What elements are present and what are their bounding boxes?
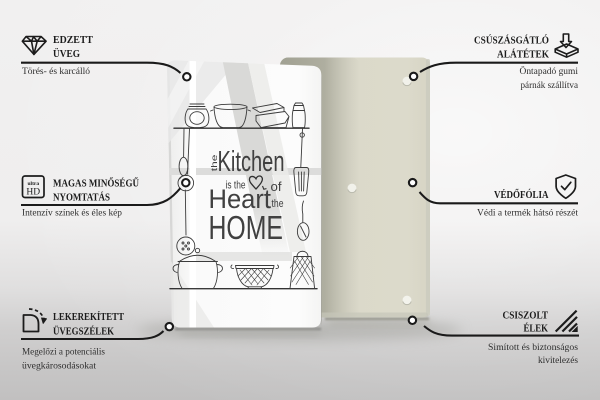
- svg-text:LEKEREKÍTETT: LEKEREKÍTETT: [53, 311, 124, 323]
- svg-text:Védi a termék hátsó részét: Védi a termék hátsó részét: [477, 208, 579, 218]
- svg-text:EDZETT: EDZETT: [53, 35, 93, 46]
- svg-text:CSÚSZÁSGÁTLÓ: CSÚSZÁSGÁTLÓ: [474, 35, 549, 47]
- svg-text:NYOMTATÁS: NYOMTATÁS: [53, 192, 110, 204]
- svg-text:Simított és biztonságos: Simított és biztonságos: [488, 342, 579, 352]
- svg-text:ALÁTÉTEK: ALÁTÉTEK: [497, 49, 549, 61]
- svg-text:Törés- és karcálló: Törés- és karcálló: [22, 66, 91, 76]
- svg-text:HD: HD: [26, 188, 40, 198]
- svg-text:Öntapadó gumi: Öntapadó gumi: [520, 66, 579, 76]
- svg-text:kivitelezés: kivitelezés: [538, 355, 579, 365]
- svg-text:of: of: [271, 179, 282, 194]
- svg-text:Megelőzi a potenciális: Megelőzi a potenciális: [22, 347, 105, 357]
- svg-text:ÜVEGSZÉLEK: ÜVEGSZÉLEK: [53, 325, 114, 338]
- svg-text:ultra: ultra: [27, 181, 39, 187]
- svg-text:Intenzív színek és éles kép: Intenzív színek és éles kép: [22, 208, 123, 218]
- svg-text:ÉLEK: ÉLEK: [524, 323, 549, 335]
- svg-text:üvegkárosodásokat: üvegkárosodásokat: [22, 361, 97, 371]
- svg-text:ÜVEG: ÜVEG: [53, 47, 80, 60]
- svg-text:párnák szállítva: párnák szállítva: [521, 80, 579, 90]
- svg-text:CSISZOLT: CSISZOLT: [503, 311, 549, 322]
- svg-text:HOME: HOME: [209, 209, 284, 246]
- svg-text:VÉDŐFÓLIA: VÉDŐFÓLIA: [494, 189, 549, 201]
- svg-text:Kitchen: Kitchen: [218, 146, 285, 178]
- svg-text:MAGAS MINŐSÉGŰ: MAGAS MINŐSÉGŰ: [53, 178, 139, 190]
